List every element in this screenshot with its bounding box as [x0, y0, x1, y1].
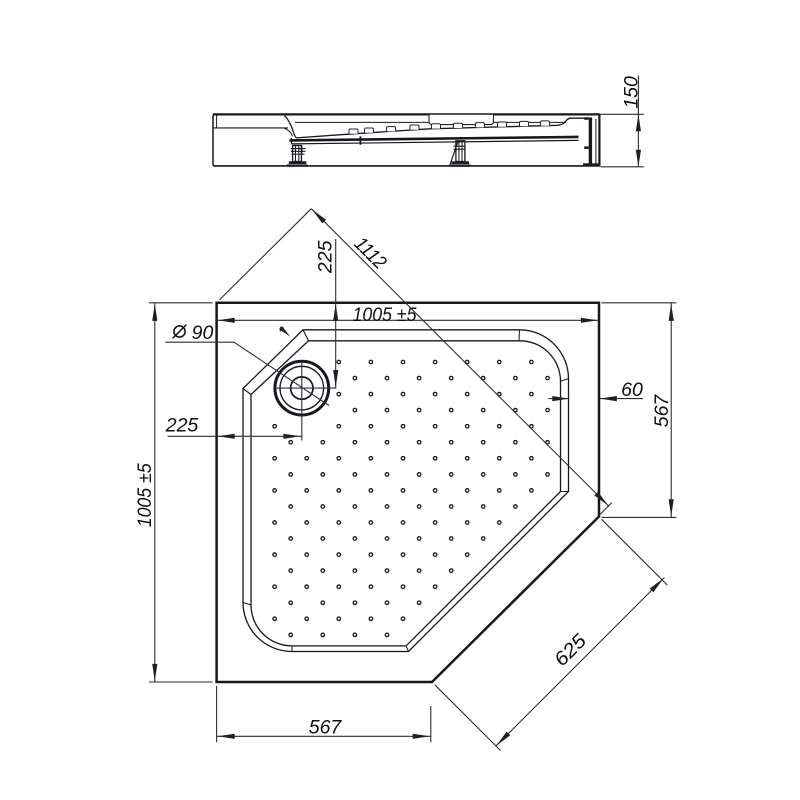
- svg-text:225: 225: [315, 240, 337, 274]
- svg-text:567: 567: [309, 717, 343, 739]
- svg-text:1005 ±5: 1005 ±5: [134, 463, 156, 527]
- svg-text:1005 ±5: 1005 ±5: [353, 304, 417, 326]
- svg-text:225: 225: [165, 414, 199, 436]
- svg-text:90: 90: [192, 322, 214, 344]
- svg-text:150: 150: [620, 76, 642, 109]
- svg-text:567: 567: [651, 394, 673, 428]
- svg-text:60: 60: [621, 379, 643, 401]
